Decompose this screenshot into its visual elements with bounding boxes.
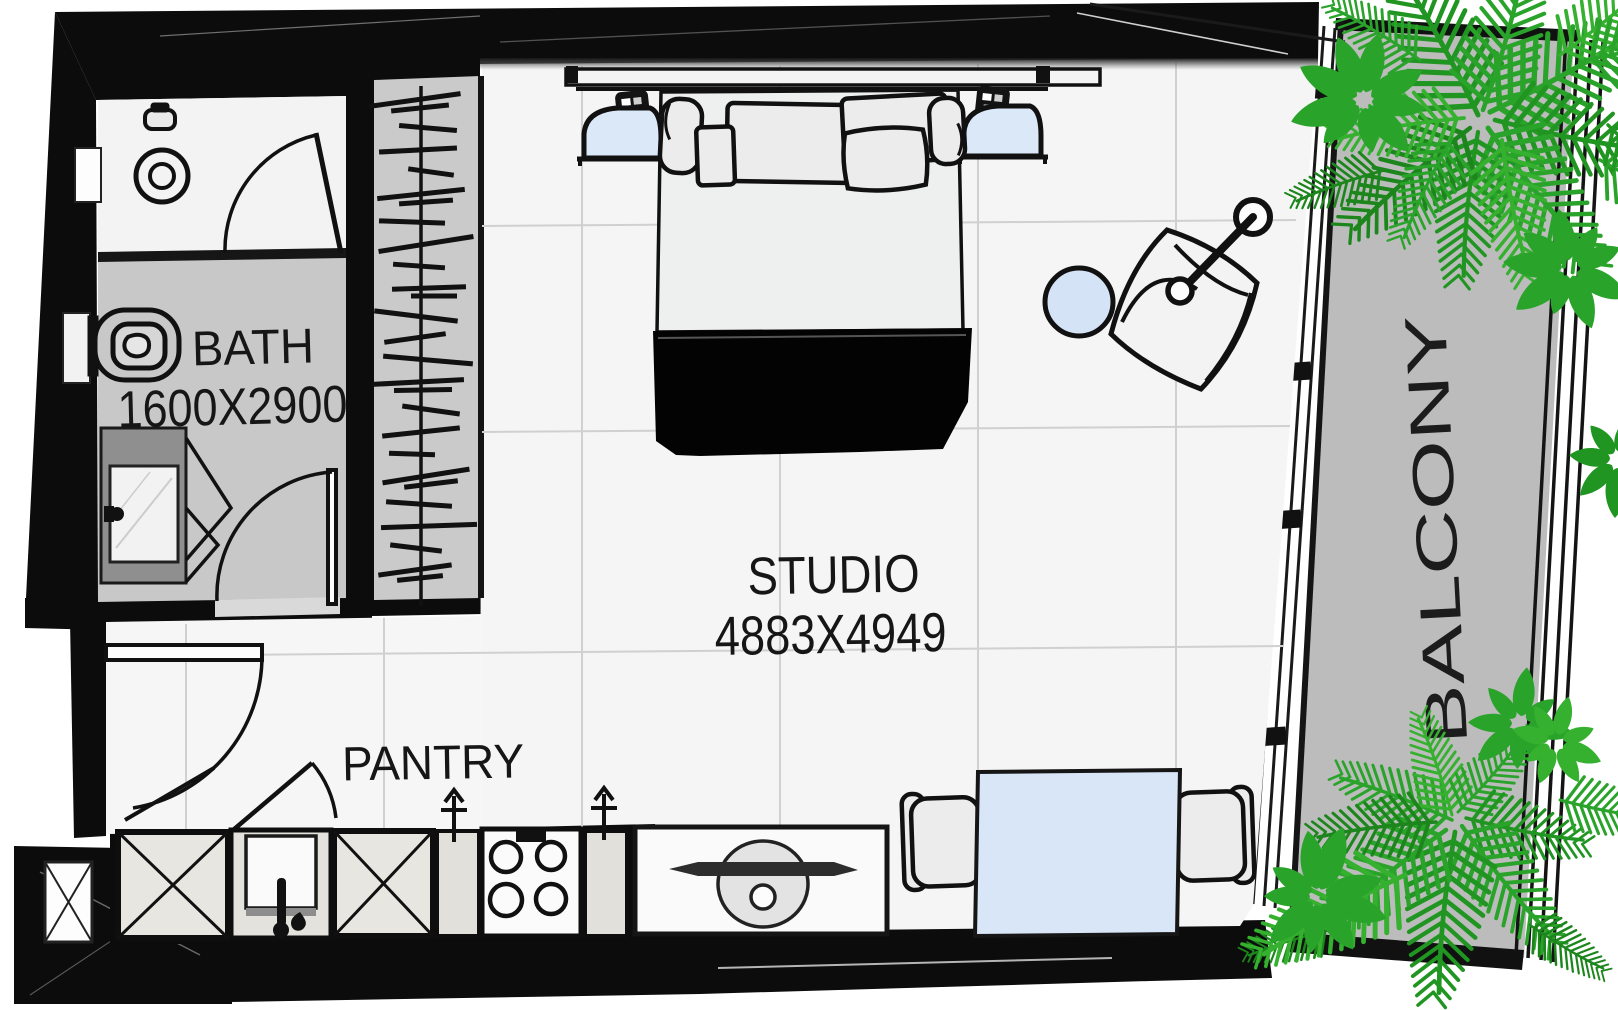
svg-text:PANTRY: PANTRY [342, 735, 525, 791]
svg-text:BATH: BATH [191, 319, 314, 376]
svg-text:1600X2900: 1600X2900 [117, 375, 348, 439]
svg-text:4883X4949: 4883X4949 [714, 601, 947, 667]
svg-text:STUDIO: STUDIO [747, 544, 920, 606]
